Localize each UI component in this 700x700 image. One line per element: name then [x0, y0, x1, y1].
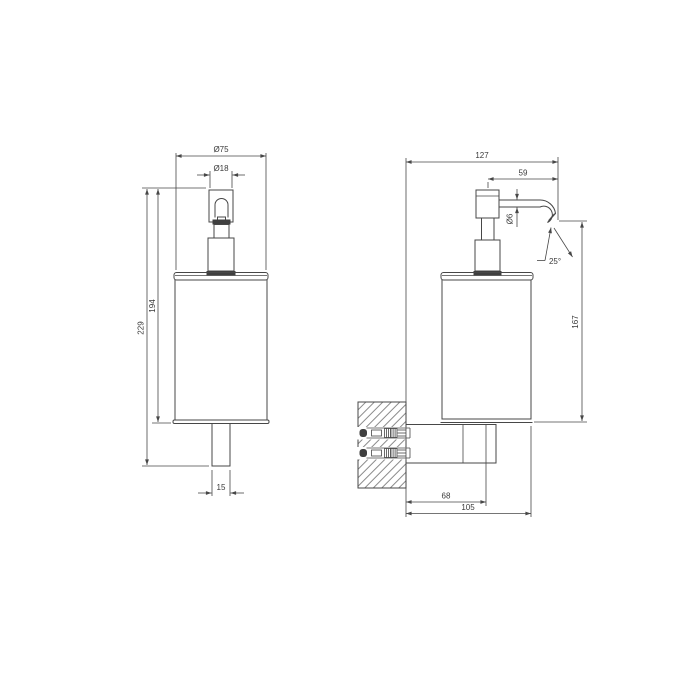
technical-drawing: Ø75 Ø18 229 194 15	[0, 0, 700, 700]
dim-pump-diameter: Ø18	[197, 164, 245, 188]
dim-label-body-height: 194	[148, 299, 157, 313]
dim-total-height: 229	[137, 188, 210, 466]
dim-label-wall-to-front: 105	[461, 503, 475, 512]
front-pump	[207, 190, 236, 276]
front-body	[173, 273, 269, 424]
side-view: 127 59 Ø6 25° 167 68	[357, 151, 587, 517]
dim-body-height: 194	[148, 189, 171, 423]
drawing-page: Ø75 Ø18 229 194 15	[0, 0, 700, 700]
dim-label-bracket-width: 15	[217, 483, 226, 492]
dim-label-spout-projection: 59	[519, 169, 528, 178]
wall-section	[357, 402, 410, 488]
dim-label-pump-diameter: Ø18	[213, 164, 229, 173]
dim-label-wall-to-bracket: 68	[442, 492, 451, 501]
dim-label-spout-to-base-height: 167	[571, 315, 580, 329]
dim-spout-diameter: Ø6	[506, 189, 518, 227]
dim-spout-to-base-height: 167	[534, 221, 587, 422]
dim-spout-projection: 59	[488, 169, 558, 189]
dim-label-total-height: 229	[137, 321, 146, 335]
front-bracket-stem	[212, 424, 230, 466]
side-pump	[474, 190, 502, 276]
front-view: Ø75 Ø18 229 194 15	[137, 145, 270, 496]
dim-label-spout-diameter: Ø6	[506, 213, 515, 224]
dim-label-spout-angle: 25°	[549, 257, 561, 266]
dim-label-total-depth: 127	[475, 151, 489, 160]
dim-label-body-diameter: Ø75	[213, 145, 229, 154]
side-body	[441, 273, 533, 423]
dim-wall-to-bracket: 68	[406, 463, 486, 506]
dim-bracket-width: 15	[198, 470, 244, 496]
dim-spout-angle: 25°	[537, 228, 573, 267]
mounting-bracket-arm	[406, 425, 496, 464]
dim-wall-to-front: 105	[406, 426, 531, 517]
